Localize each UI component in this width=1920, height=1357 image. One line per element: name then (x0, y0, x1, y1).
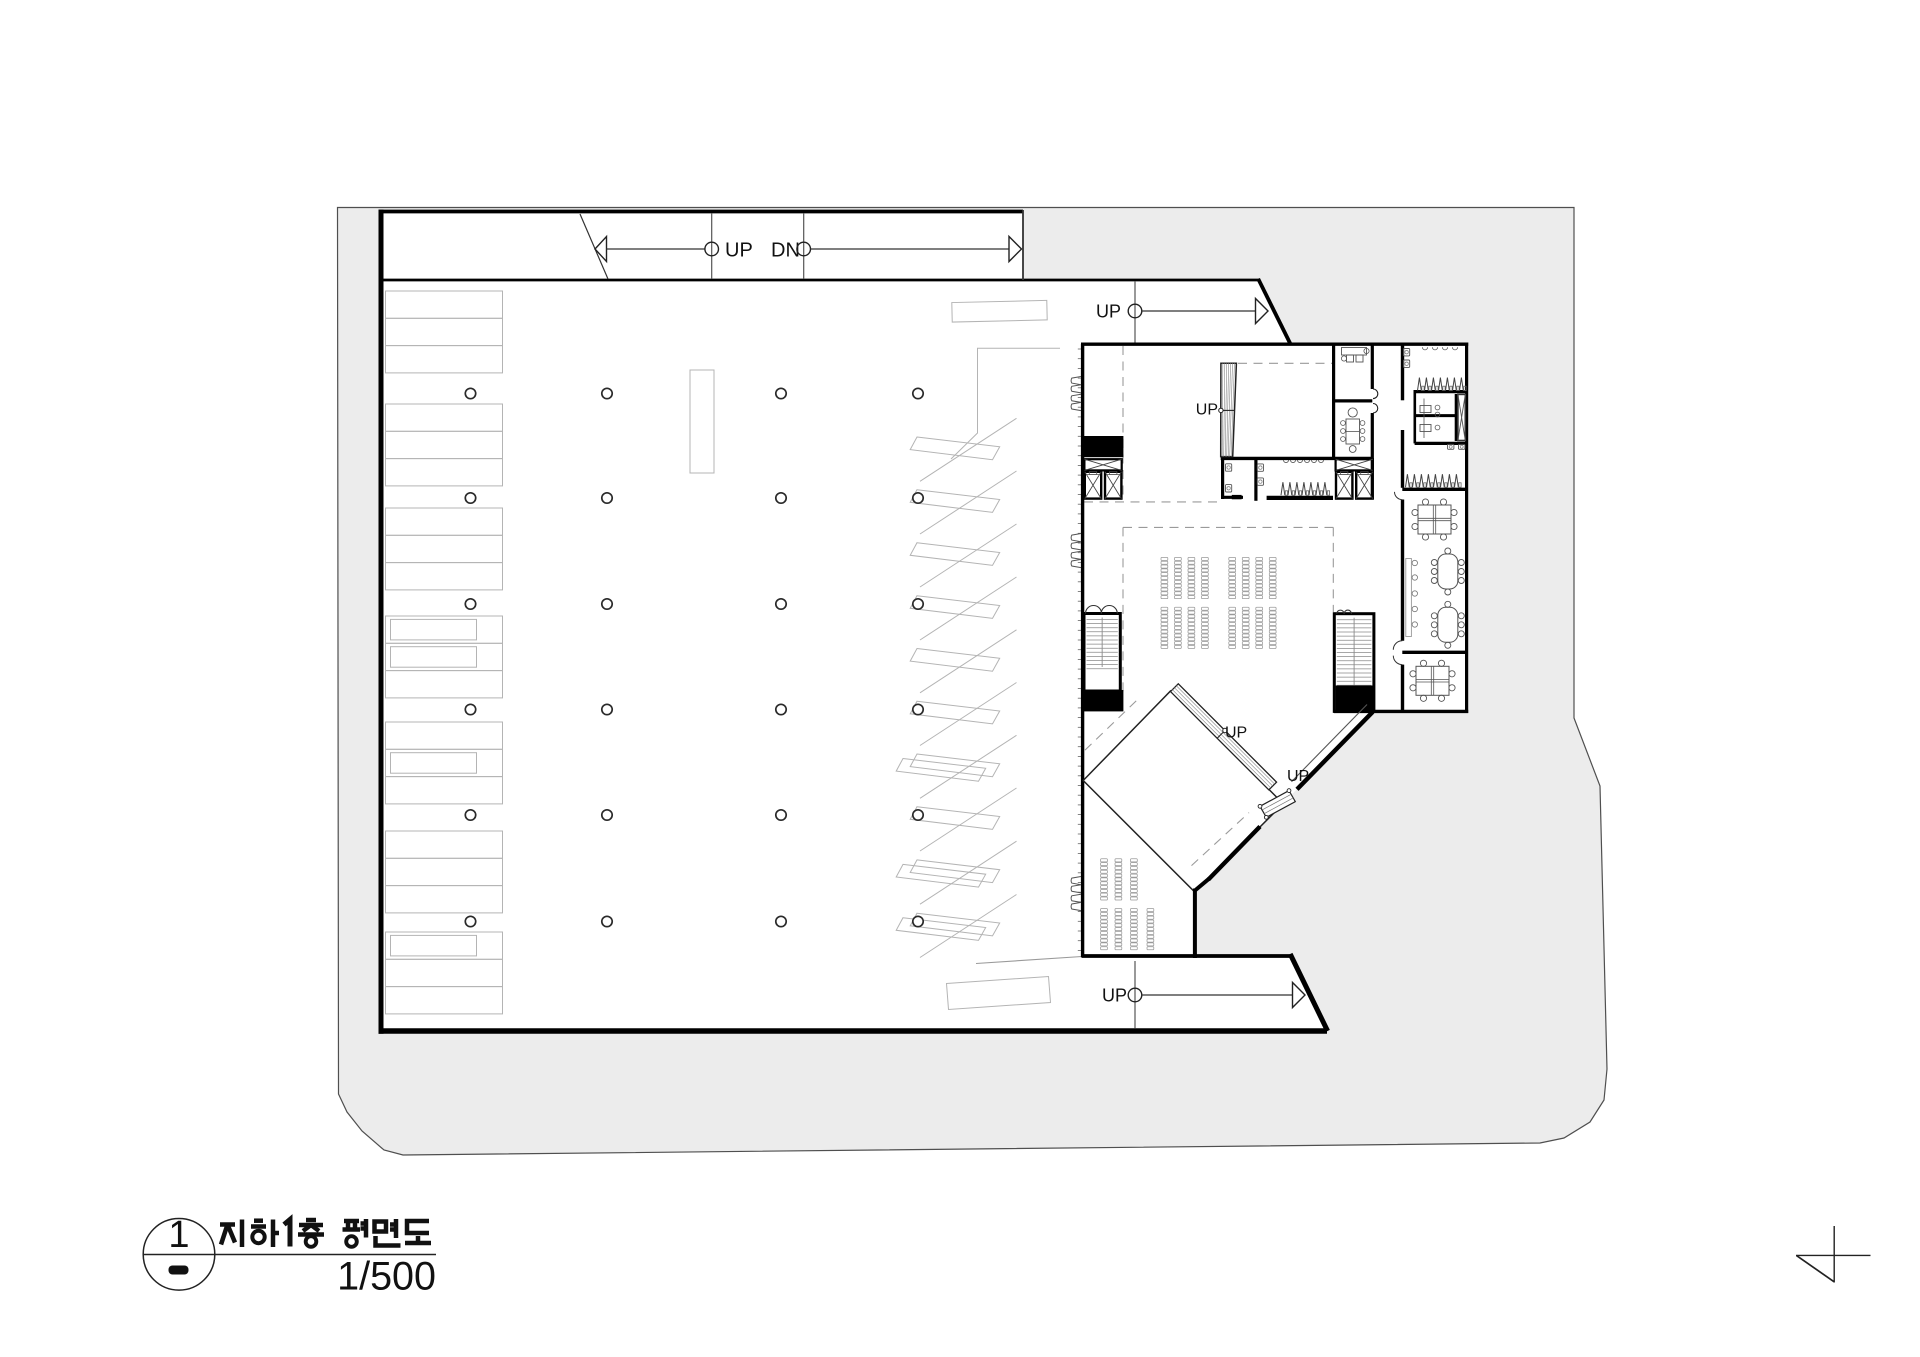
svg-text:UP: UP (1102, 986, 1127, 1006)
svg-text:1/500: 1/500 (337, 1255, 436, 1299)
svg-text:1: 1 (168, 1214, 189, 1256)
svg-text:UP: UP (1287, 768, 1309, 785)
svg-text:UP: UP (1196, 401, 1218, 418)
svg-text:UP: UP (725, 240, 753, 262)
svg-text:UP: UP (1096, 302, 1121, 322)
svg-text:DN: DN (771, 240, 800, 262)
svg-text:UP: UP (1225, 725, 1247, 742)
